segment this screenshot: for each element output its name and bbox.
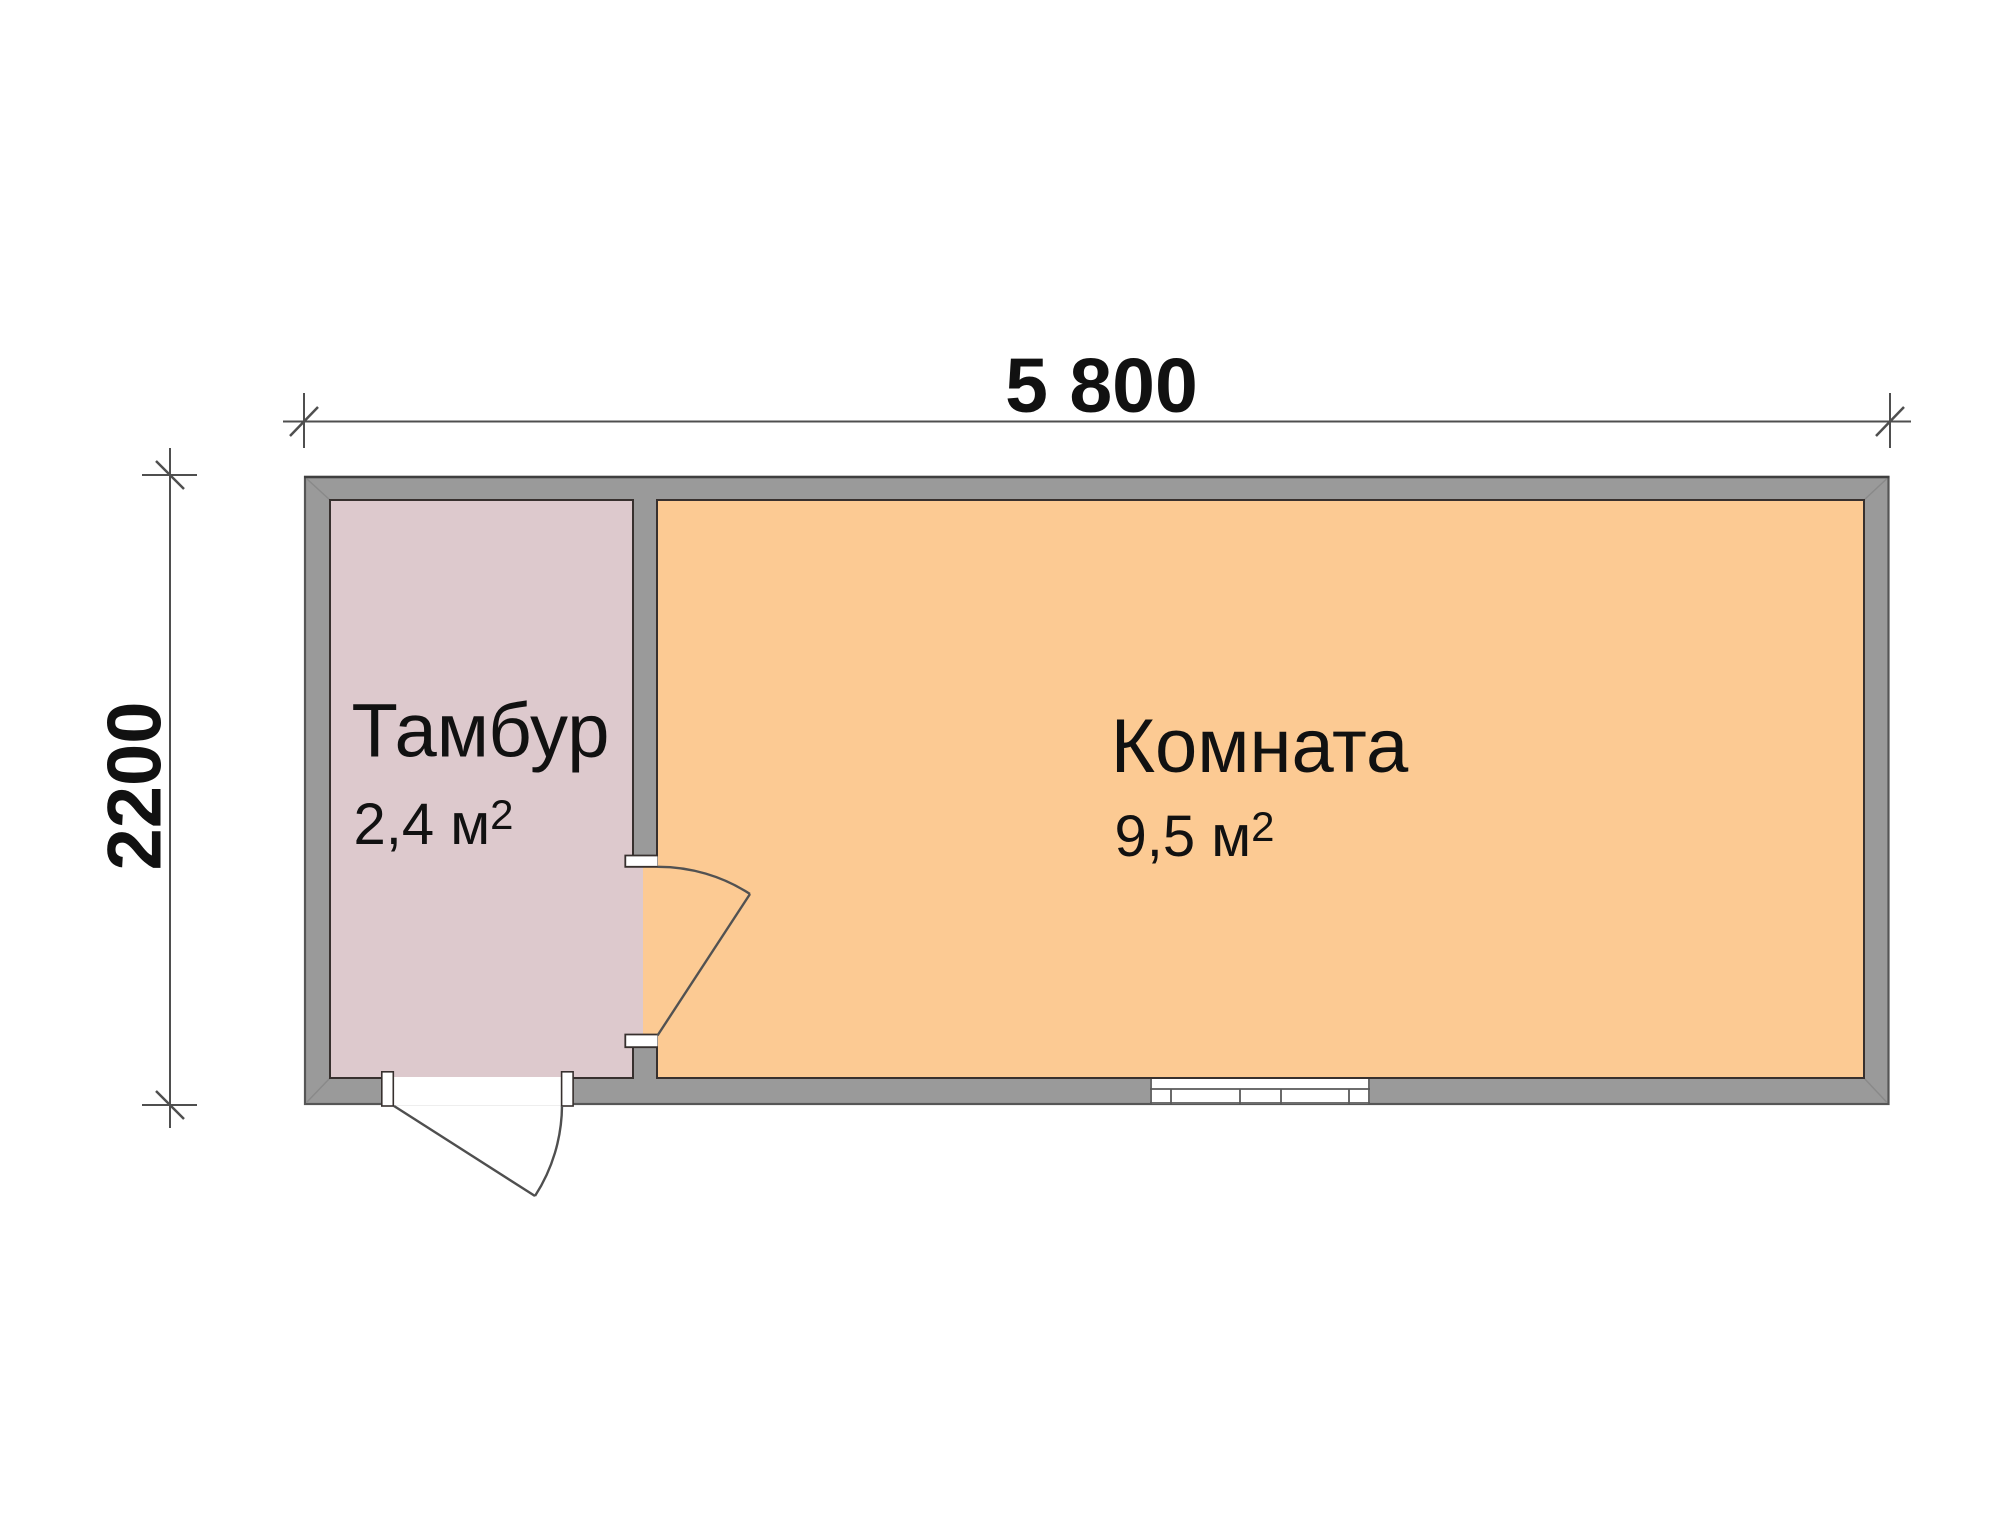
svg-text:Тамбур: Тамбур [352,689,610,774]
svg-text:2200: 2200 [93,701,178,870]
svg-text:5 800: 5 800 [1005,343,1198,429]
svg-text:2,4 м2: 2,4 м2 [354,791,514,857]
svg-text:Комната: Комната [1111,704,1409,789]
svg-text:9,5 м2: 9,5 м2 [1115,803,1275,869]
